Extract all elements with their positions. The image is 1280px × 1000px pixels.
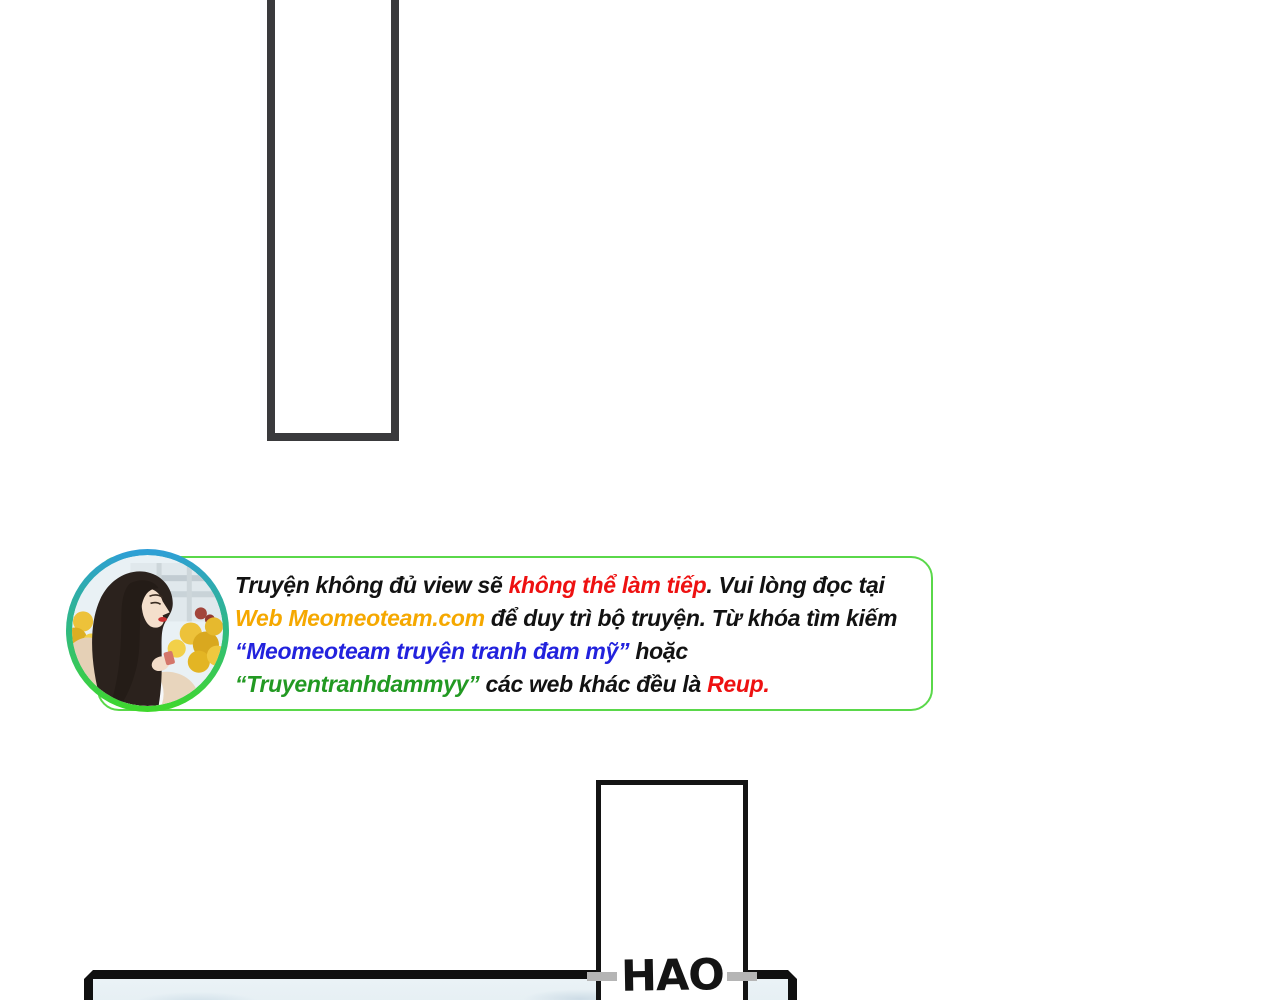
notice-line-2: Web Meomeoteam.com để duy trì bộ truyện.… [235, 602, 923, 635]
dash-right-icon [727, 972, 757, 981]
dash-left-icon [587, 972, 617, 981]
notice-line-4: “Truyentranhdammyy” các web khác đều là … [235, 668, 923, 701]
avatar [66, 549, 229, 712]
notice-text: Truyện không đủ view sẽ không thể làm ti… [235, 569, 923, 701]
tall-speech-panel [267, 0, 399, 441]
hao-label: HAO [601, 955, 743, 997]
comic-page: Truyện không đủ view sẽ không thể làm ti… [0, 0, 1280, 1000]
hao-text: HAO [620, 954, 724, 998]
hao-speech-bubble: HAO [596, 780, 748, 1000]
notice-line-3: “Meomeoteam truyện tranh đam mỹ” hoặc [235, 635, 923, 668]
notice-line-1: Truyện không đủ view sẽ không thể làm ti… [235, 569, 923, 602]
avatar-photo-icon [72, 555, 223, 706]
